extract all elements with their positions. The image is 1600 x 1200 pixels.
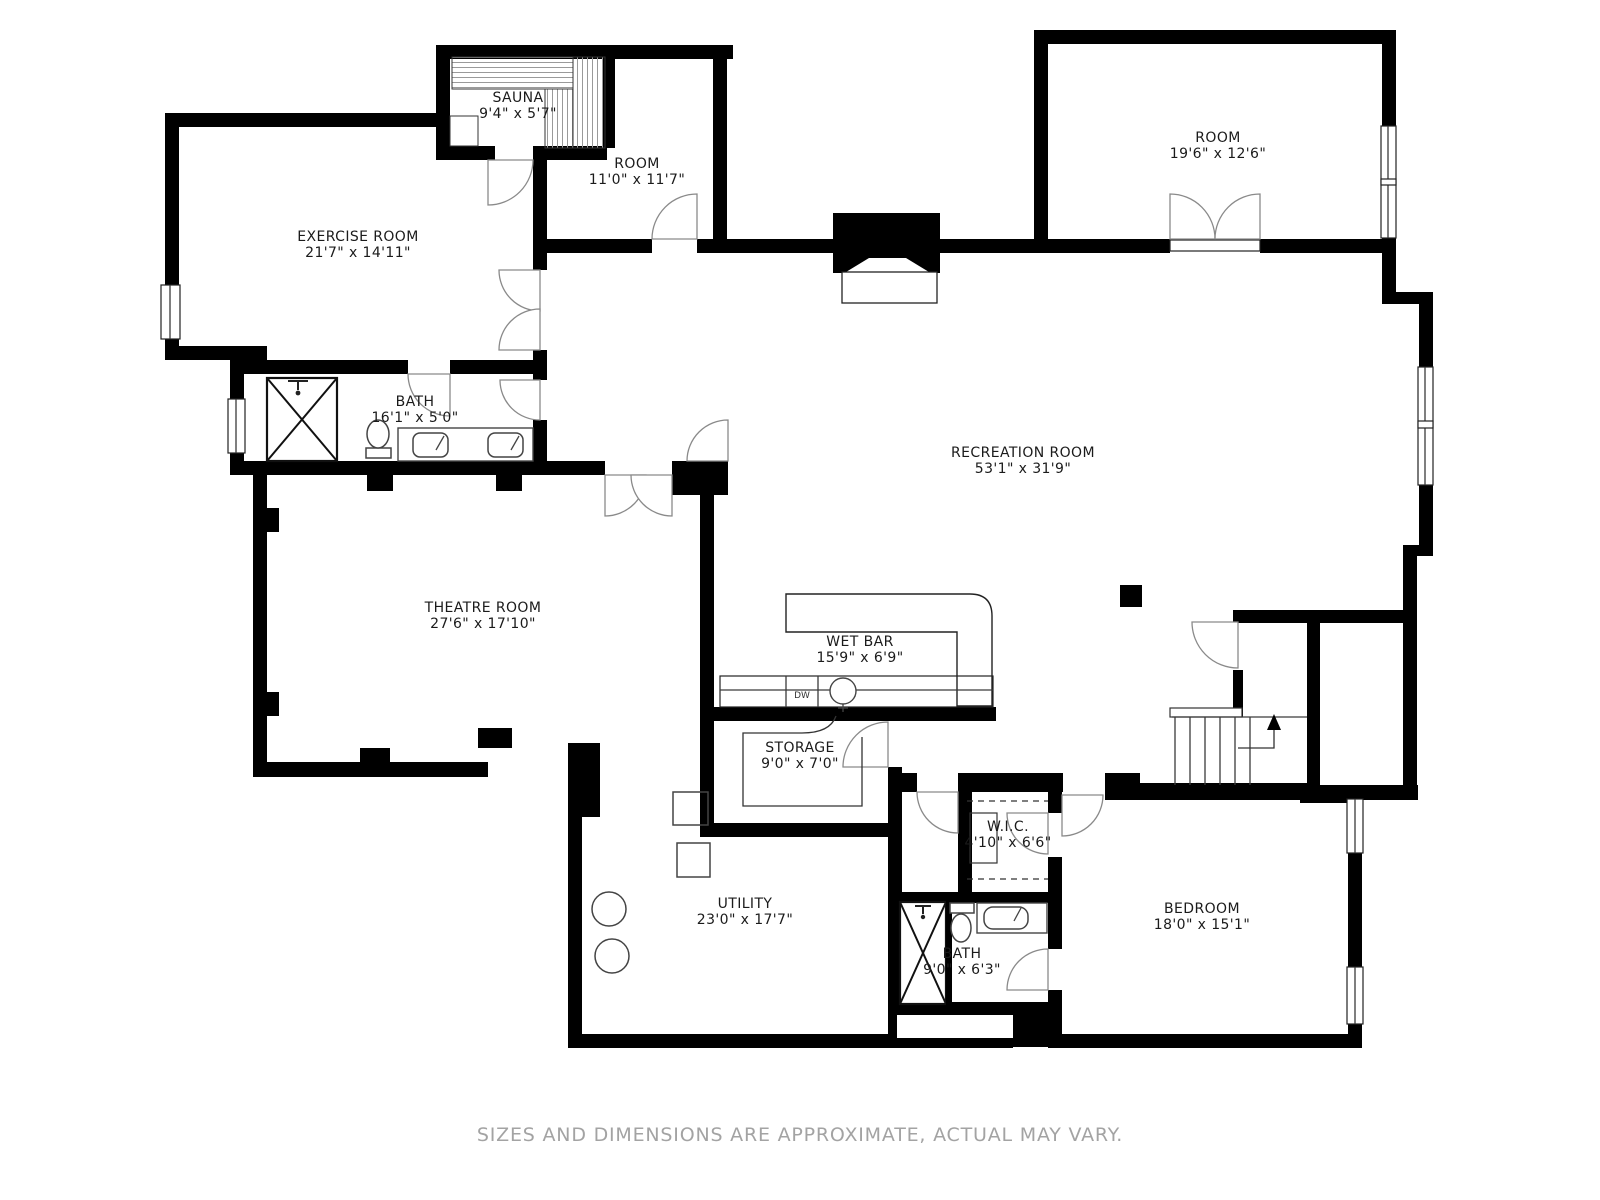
room-dims-storage: 9'0" x 7'0" bbox=[761, 756, 839, 772]
stair-direction-line bbox=[1238, 728, 1274, 748]
room-dims-wic: 4'10" x 6'6" bbox=[964, 835, 1051, 851]
sauna-heater bbox=[450, 116, 478, 146]
room-dims-exercise: 21'7" x 14'11" bbox=[305, 245, 411, 261]
doors bbox=[408, 160, 1260, 990]
room-dims-recreation: 53'1" x 31'9" bbox=[975, 461, 1071, 477]
door-hall bbox=[917, 792, 958, 833]
door-sill-room-top-right bbox=[1170, 240, 1260, 251]
room-dims-wet-bar: 15'9" x 6'9" bbox=[816, 650, 903, 666]
door-exercise-a bbox=[499, 270, 540, 311]
room-label-bedroom: BEDROOM bbox=[1164, 901, 1240, 917]
floor-plan: DW bbox=[0, 0, 1600, 1200]
room-label-wic: W.I.C. bbox=[987, 819, 1029, 835]
room-dims-sauna: 9'4" x 5'7" bbox=[479, 106, 557, 122]
door-room-small bbox=[652, 194, 697, 239]
door-room-top-right-a bbox=[1170, 194, 1215, 239]
door-bath-lower bbox=[1007, 949, 1048, 990]
room-dims-theatre: 27'6" x 17'10" bbox=[430, 616, 536, 632]
room-dims-room-top: 19'6" x 12'6" bbox=[1170, 146, 1266, 162]
utility-fixtures bbox=[592, 792, 710, 973]
room-label-exercise: EXERCISE ROOM bbox=[297, 229, 418, 245]
water-tank bbox=[592, 892, 626, 926]
door-exercise-b bbox=[499, 309, 540, 350]
window-room-top-right bbox=[1381, 126, 1396, 238]
door-room-top-right-b bbox=[1215, 194, 1260, 239]
room-dims-bath-lower: 9'0" x 6'3" bbox=[923, 962, 1001, 978]
vanity-main bbox=[398, 428, 533, 461]
room-label-room-small: ROOM bbox=[614, 156, 659, 172]
window-exercise bbox=[161, 285, 180, 339]
water-tank bbox=[595, 939, 629, 973]
room-dims-bedroom: 18'0" x 15'1" bbox=[1154, 917, 1250, 933]
room-label-theatre: THEATRE ROOM bbox=[424, 600, 542, 616]
utility-unit bbox=[677, 843, 710, 877]
bar-sink bbox=[830, 678, 856, 704]
room-label-sauna: SAUNA bbox=[492, 90, 543, 106]
window-bedroom-lower bbox=[1347, 967, 1363, 1024]
room-label-bath-main: BATH bbox=[396, 394, 435, 410]
door-rec-corner bbox=[687, 420, 728, 461]
door-sauna bbox=[488, 160, 533, 205]
door-bedroom bbox=[1062, 795, 1103, 836]
stairs bbox=[1170, 708, 1307, 785]
door-storage bbox=[843, 722, 888, 767]
room-dims-room-small: 11'0" x 11'7" bbox=[589, 172, 685, 188]
vanity-lower bbox=[977, 903, 1047, 933]
room-label-wet-bar: WET BAR bbox=[826, 634, 893, 650]
disclaimer-text: SIZES AND DIMENSIONS ARE APPROXIMATE, AC… bbox=[0, 1124, 1600, 1146]
room-label-storage: STORAGE bbox=[765, 740, 834, 756]
room-label-bath-lower: BATH bbox=[943, 946, 982, 962]
fireplace bbox=[833, 213, 940, 303]
door-theatre-b bbox=[631, 475, 672, 516]
door-bath-main-east bbox=[500, 380, 540, 420]
labels: SAUNA 9'4" x 5'7" ROOM 11'0" x 11'7" ROO… bbox=[297, 90, 1266, 978]
window-recreation bbox=[1418, 367, 1433, 485]
window-bath-main bbox=[228, 399, 245, 453]
shower-main bbox=[267, 378, 337, 461]
room-dims-utility: 23'0" x 17'7" bbox=[697, 912, 793, 928]
floor-plan-page: DW bbox=[0, 0, 1600, 1200]
room-label-recreation: RECREATION ROOM bbox=[951, 445, 1095, 461]
toilet-lower bbox=[950, 903, 974, 942]
room-label-utility: UTILITY bbox=[718, 896, 773, 912]
walls bbox=[165, 30, 1433, 1048]
room-label-room-top: ROOM bbox=[1195, 130, 1240, 146]
dishwasher-label: DW bbox=[794, 691, 810, 701]
window-bedroom-upper bbox=[1347, 799, 1363, 853]
door-stairs bbox=[1192, 622, 1238, 668]
room-dims-bath-main: 16'1" x 5'0" bbox=[371, 410, 458, 426]
